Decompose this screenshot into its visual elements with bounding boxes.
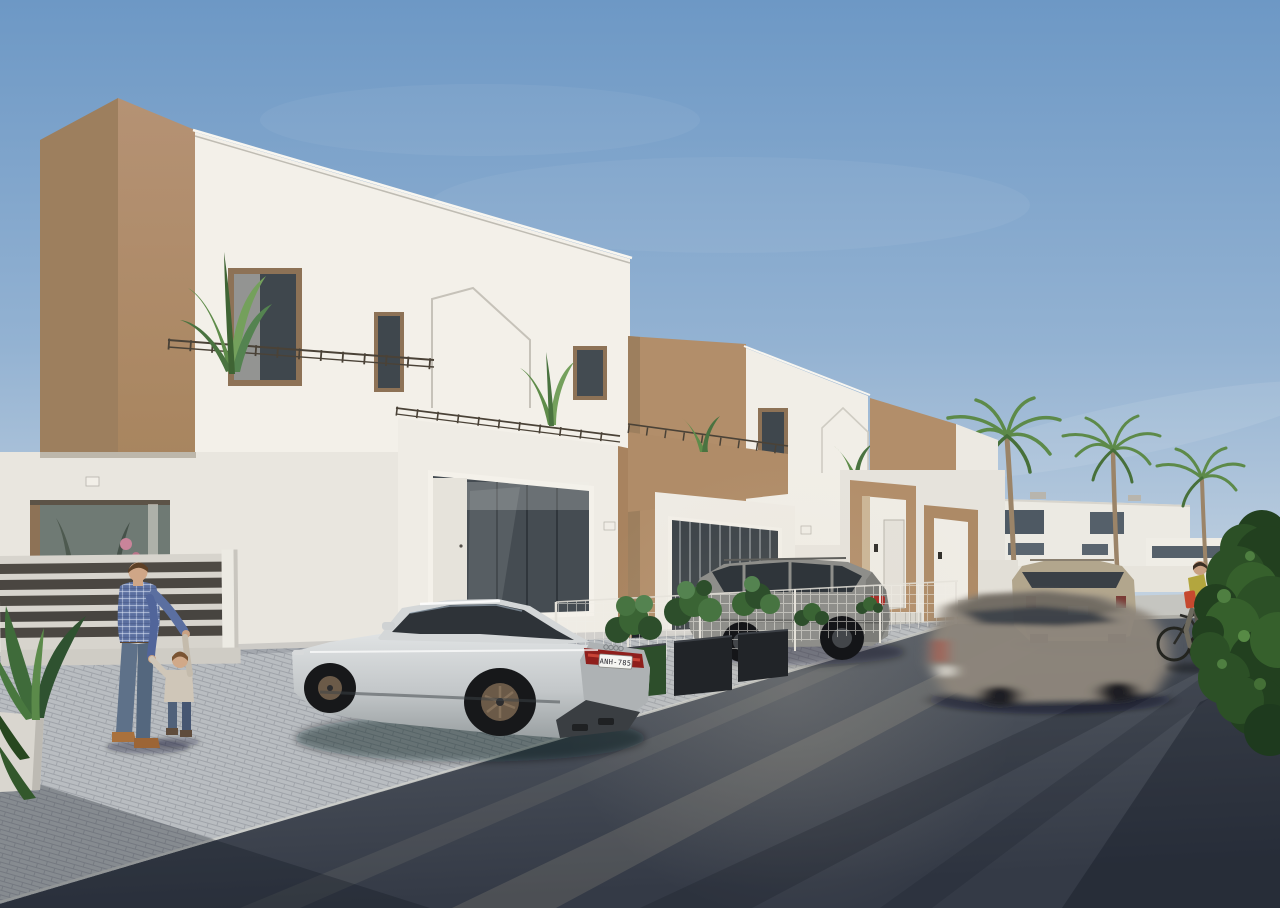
glass-reflection-flowers: [120, 538, 132, 550]
bush-highlight: [1245, 551, 1255, 561]
moving-car-taillight: [934, 640, 946, 662]
side-mirror: [382, 622, 395, 630]
background-window: [1090, 512, 1124, 534]
toddler-shoe: [166, 728, 178, 735]
car-moving-blurred: [928, 590, 1170, 714]
audi-license-plate: ANH-785: [599, 654, 633, 669]
shrub: [760, 594, 780, 614]
planter-box: [738, 630, 788, 682]
cloud-wisp: [260, 84, 700, 156]
shrub: [677, 581, 695, 599]
shrub: [638, 616, 662, 640]
wall-lamp: [604, 522, 615, 530]
scene-canvas: ANH-785: [0, 0, 1280, 908]
shrub: [698, 598, 722, 622]
moving-car-wheel: [1098, 682, 1138, 702]
window-glass: [378, 316, 400, 388]
background-window: [1002, 510, 1044, 534]
distant-window-band: [1152, 546, 1224, 558]
glass-top-sheen: [467, 482, 589, 510]
slab-soffit-shadow: [40, 452, 196, 458]
window-glass: [577, 350, 603, 396]
door-handle: [459, 544, 462, 547]
background-window: [1082, 544, 1108, 555]
moving-car-wheel: [980, 686, 1020, 706]
planter-box: [674, 636, 732, 696]
hub: [327, 685, 333, 691]
toddler-jeans-leg: [168, 700, 177, 730]
shrub: [744, 576, 760, 592]
bush-highlight: [1238, 630, 1250, 642]
hedge: [815, 611, 829, 625]
wall-lamp: [86, 477, 99, 486]
shrub: [635, 595, 653, 613]
shrub: [616, 596, 636, 616]
tan-slab-side: [40, 98, 118, 470]
roof-unit: [1030, 492, 1046, 499]
exhaust-tip: [598, 718, 614, 725]
bush-highlight: [1217, 589, 1231, 603]
man-shoe: [134, 738, 160, 748]
bush-highlight: [1217, 659, 1227, 669]
bush-highlight: [1254, 678, 1266, 690]
headlight-sliver: [293, 650, 304, 655]
hedge: [873, 603, 883, 613]
shrub: [696, 580, 712, 596]
man-shoe: [112, 732, 136, 742]
toddler-jeans-leg: [182, 702, 191, 732]
architectural-render: ANH-785: [0, 0, 1280, 908]
beige-suv-glass: [1022, 572, 1124, 588]
toddler-shoe: [180, 730, 192, 737]
exhaust-tip: [572, 724, 588, 731]
roof-unit: [1128, 495, 1141, 501]
man-arm: [150, 598, 154, 656]
moving-car-plate: [938, 666, 954, 676]
tan-slab-front: [118, 98, 195, 458]
